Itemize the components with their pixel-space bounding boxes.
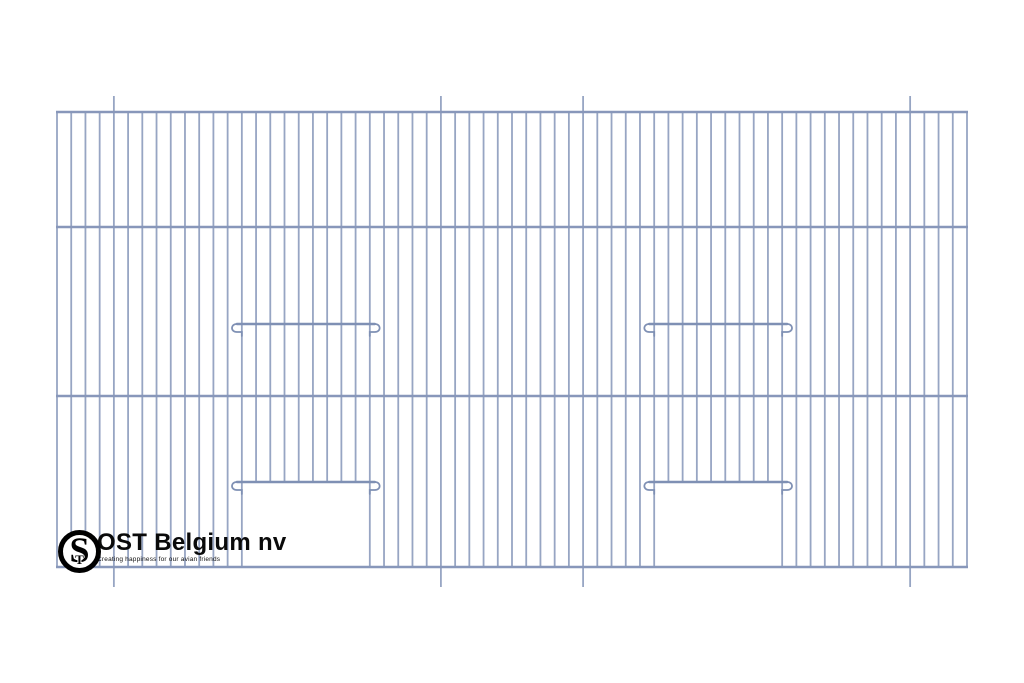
brand-name: OST Belgium nv <box>97 532 287 554</box>
brand-logo: S T OST Belgium nv Creating happiness fo… <box>58 530 287 573</box>
brand-text-block: OST Belgium nv Creating happiness for ou… <box>97 530 287 563</box>
cage-panel-drawing <box>0 0 1024 683</box>
monogram-letter-t: T <box>75 553 84 566</box>
vertical-wires <box>57 96 967 587</box>
ost-monogram-logo-icon: S T <box>58 530 101 573</box>
brand-tagline: Creating happiness for our avian friends <box>97 556 287 563</box>
product-image-bird-cage-front: S T OST Belgium nv Creating happiness fo… <box>0 0 1024 683</box>
